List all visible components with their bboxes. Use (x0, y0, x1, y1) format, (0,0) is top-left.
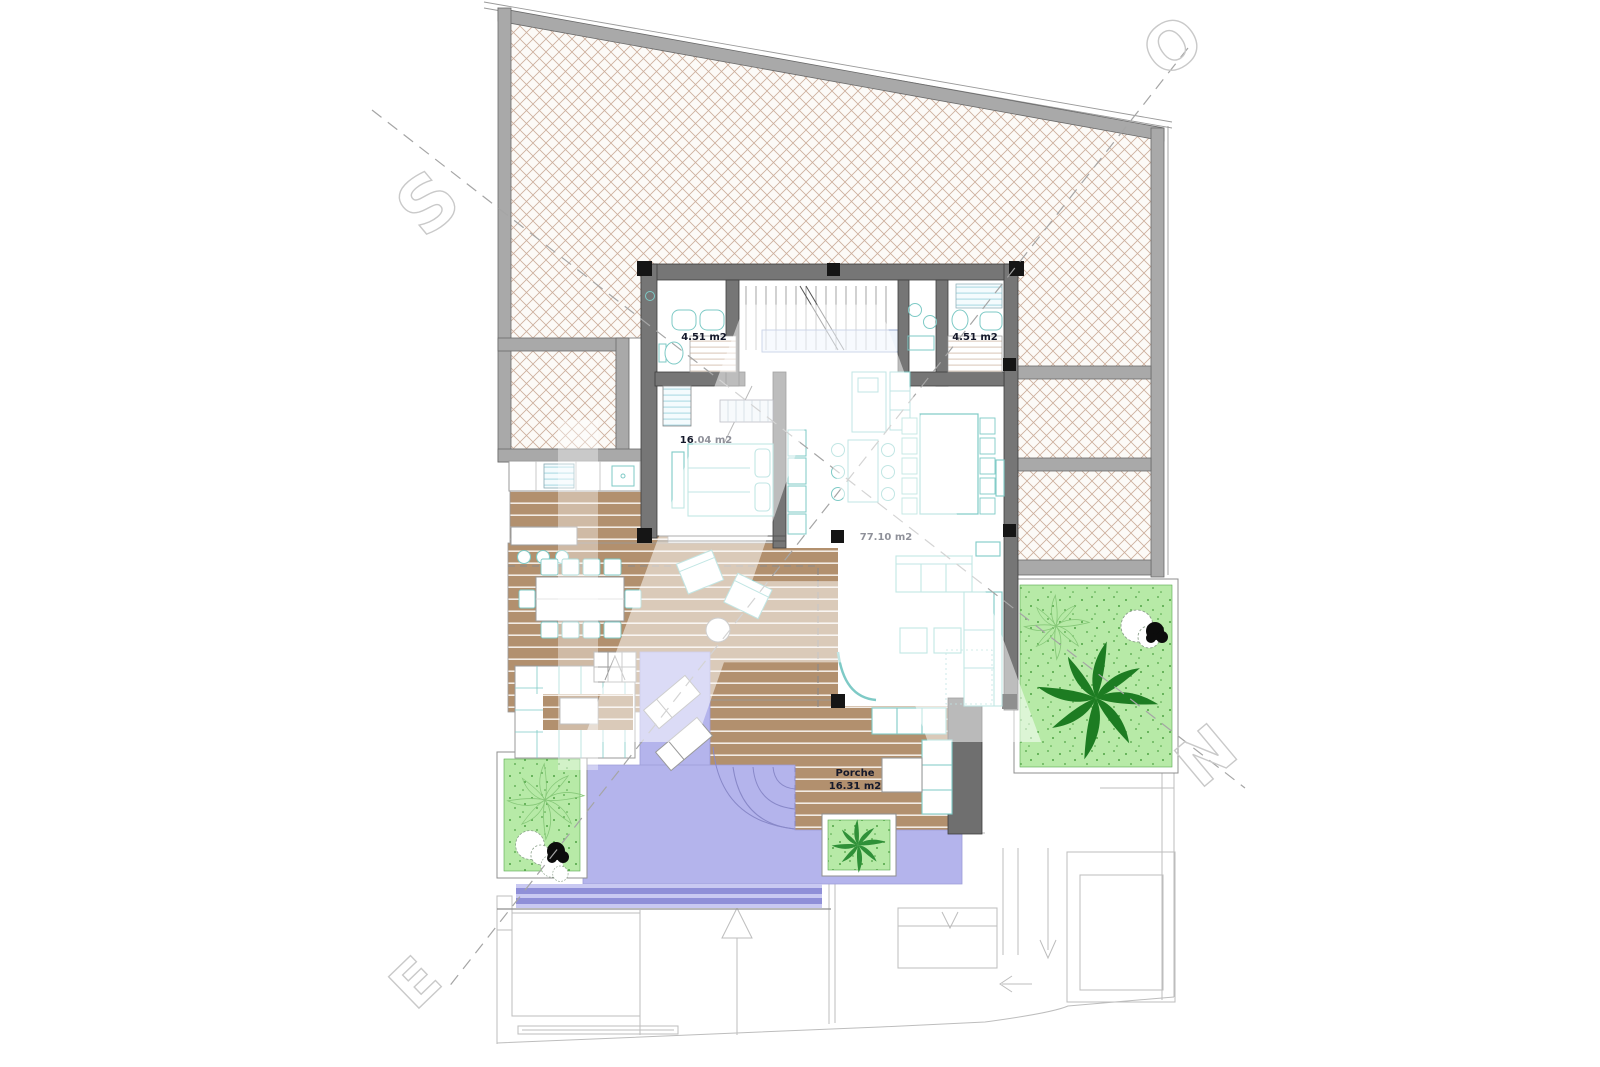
floor-plan: 4.51 m2 4.51 m2 16.04 m2 77.10 m2 Porche… (0, 0, 1600, 1067)
planter-left (497, 752, 587, 881)
page: 4.51 m2 4.51 m2 16.04 m2 77.10 m2 Porche… (0, 0, 1600, 1067)
watermark-letter-a: A (580, 185, 1049, 884)
pool-infinity-edge (516, 884, 822, 908)
